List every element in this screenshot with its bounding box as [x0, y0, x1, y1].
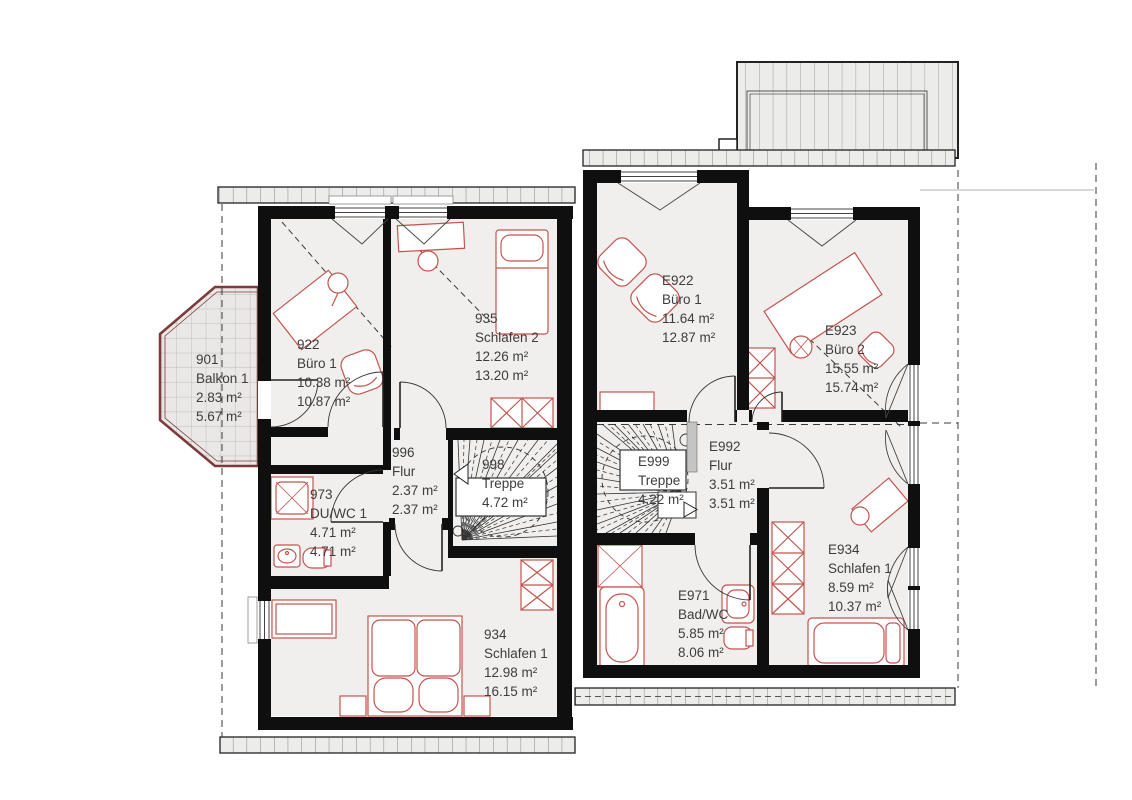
- room-label-935: 935Schlafen 212.26 m²13.20 m²: [475, 309, 539, 385]
- wardrobe-symbol-935: [491, 398, 553, 428]
- window-sill: [248, 597, 257, 643]
- room-label-E922: E922Büro 111.64 m²12.87 m²: [662, 271, 715, 347]
- window-symbol: [788, 207, 856, 220]
- wardrobe-symbol-934: [521, 560, 553, 610]
- room-label-E999: E999Treppe4.22 m²: [638, 452, 684, 509]
- bed-symbol-E934: [808, 618, 904, 668]
- shower-symbol-973: [271, 477, 313, 519]
- wardrobe-symbol-E934: [772, 522, 804, 614]
- room-label-E992: E992Flur3.51 m²3.51 m²: [709, 437, 755, 513]
- roof-deck: [719, 62, 958, 158]
- room-label-E934: E934Schlafen 18.59 m²10.37 m²: [828, 540, 892, 616]
- floor-plan-drawing: [0, 0, 1132, 800]
- window-symbol: [618, 170, 700, 183]
- light-partition-wall: [687, 422, 697, 472]
- balcony-door-opening: [258, 378, 271, 422]
- washbasin-symbol-973: [274, 545, 300, 567]
- window-symbol: [908, 362, 920, 487]
- window-symbol: [258, 598, 271, 642]
- room-label-934: 934Schlafen 112.98 m²16.15 m²: [484, 625, 548, 701]
- room-label-922: 922Büro 110.38 m²10.87 m²: [297, 335, 350, 411]
- room-label-901: 901Balkon 12.83 m²5.67 m²: [196, 350, 249, 426]
- window-symbol: [908, 545, 920, 632]
- chair-symbol: [851, 507, 869, 525]
- bathtub-symbol-E971: [600, 587, 644, 669]
- nightstand-symbol: [340, 696, 366, 716]
- chair-symbol: [418, 251, 438, 271]
- sideboard-symbol-934: [272, 600, 336, 638]
- window-sill: [329, 196, 391, 204]
- window-sill: [393, 196, 453, 204]
- room-label-E971: E971Bad/WC5.85 m²8.06 m²: [678, 586, 728, 662]
- floor-plan: 901Balkon 12.83 m²5.67 m² 922Büro 110.38…: [0, 0, 1132, 800]
- room-label-996: 996Flur2.37 m²2.37 m²: [392, 443, 438, 519]
- shower-symbol-E971: [598, 545, 642, 587]
- wardrobe-symbol-corridor: [745, 348, 775, 408]
- room-label-E923: E923Büro 215.55 m²15.74 m²: [825, 321, 878, 397]
- chair-symbol: [328, 273, 348, 293]
- window-symbol: [332, 206, 388, 219]
- window-symbol: [396, 206, 450, 219]
- room-label-973: 973DU/WC 14.71 m²4.71 m²: [310, 485, 367, 561]
- room-label-998: 998Treppe4.72 m²: [482, 455, 528, 512]
- toilet-symbol-E971: [724, 627, 753, 649]
